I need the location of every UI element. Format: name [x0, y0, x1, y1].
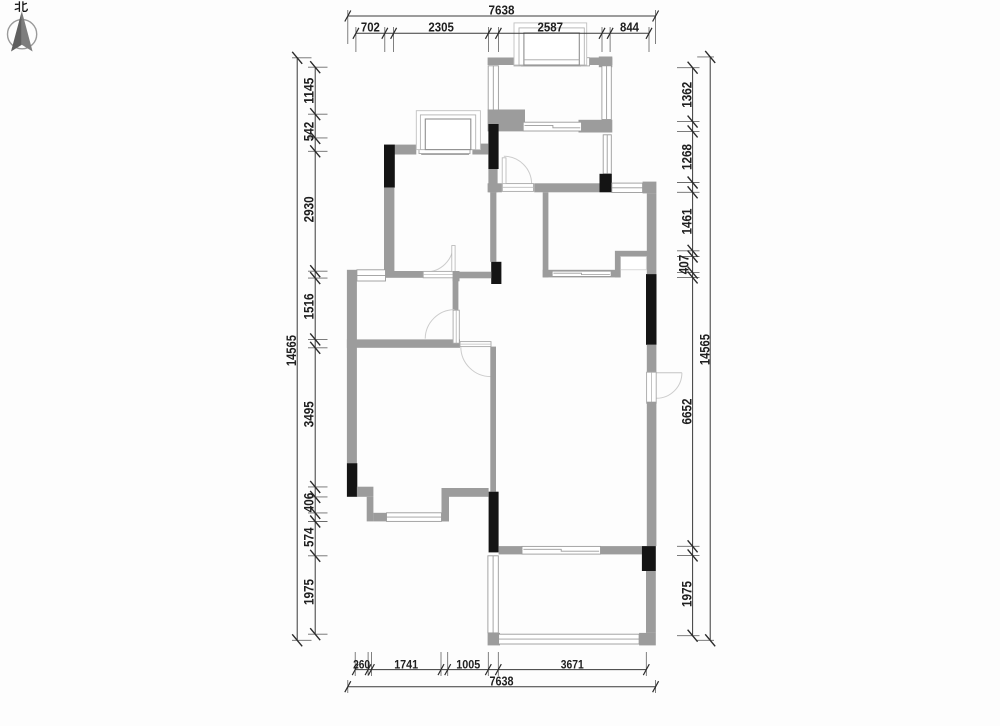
- svg-text:1975: 1975: [680, 581, 695, 607]
- svg-text:3671: 3671: [561, 658, 584, 672]
- svg-text:1145: 1145: [302, 77, 317, 103]
- svg-text:2587: 2587: [537, 19, 563, 34]
- svg-text:14565: 14565: [697, 334, 712, 365]
- svg-text:2305: 2305: [428, 19, 454, 34]
- svg-text:6652: 6652: [680, 399, 695, 425]
- svg-text:1741: 1741: [394, 658, 418, 672]
- svg-text:542: 542: [302, 122, 317, 142]
- svg-text:406: 406: [302, 492, 317, 512]
- svg-text:1516: 1516: [302, 293, 317, 319]
- svg-text:14565: 14565: [284, 335, 299, 366]
- svg-text:3495: 3495: [302, 401, 317, 427]
- svg-text:844: 844: [620, 19, 640, 34]
- svg-text:260: 260: [353, 660, 370, 672]
- svg-text:1362: 1362: [680, 82, 695, 108]
- svg-text:2930: 2930: [302, 196, 317, 222]
- svg-text:702: 702: [361, 19, 380, 34]
- svg-text:1975: 1975: [302, 579, 317, 605]
- svg-text:407: 407: [677, 255, 692, 275]
- svg-text:7638: 7638: [490, 673, 514, 688]
- svg-text:1461: 1461: [680, 208, 695, 234]
- svg-text:7638: 7638: [489, 3, 515, 18]
- svg-text:574: 574: [302, 527, 317, 547]
- svg-text:1268: 1268: [680, 144, 695, 170]
- svg-text:1005: 1005: [456, 658, 480, 672]
